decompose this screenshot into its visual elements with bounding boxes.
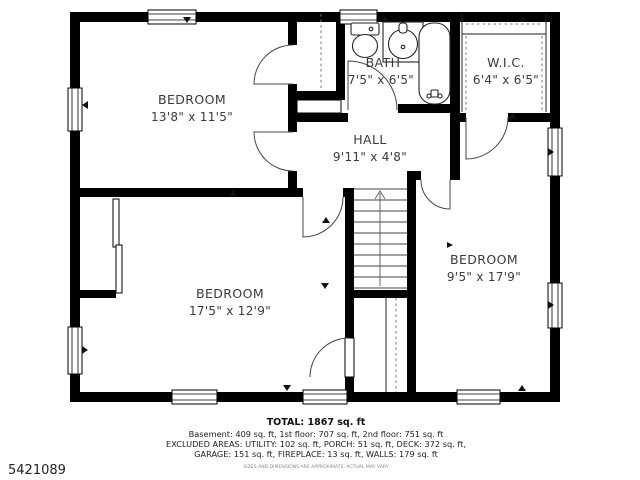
stairs-up-arrow xyxy=(375,191,385,286)
plan-id: 5421089 xyxy=(8,463,66,478)
room-dims-bath: 7'5" x 6'5" xyxy=(348,73,414,87)
floor-plan-page: BEDROOM 13'8" x 11'5" BATH 7'5" x 6'5" W… xyxy=(0,0,640,480)
summary-excluded-2: GARAGE: 151 sq. ft, FIREPLACE: 13 sq. ft… xyxy=(194,449,438,459)
wall-right xyxy=(550,12,560,402)
room-label-bath: BATH xyxy=(366,55,401,70)
sliding-closet-doors xyxy=(113,199,122,293)
room-dims-bedroom1: 13'8" x 11'5" xyxy=(151,110,233,124)
window xyxy=(457,390,500,404)
toilet-icon xyxy=(351,23,379,58)
area-summary: TOTAL: 1867 sq. ft Basement: 409 sq. ft,… xyxy=(166,417,466,470)
interior-walls xyxy=(80,12,560,402)
floor-plan-drawing: BEDROOM 13'8" x 11'5" BATH 7'5" x 6'5" W… xyxy=(0,0,640,480)
summary-total: TOTAL: 1867 sq. ft xyxy=(267,417,366,428)
outer-walls xyxy=(70,12,560,402)
room-label-hall: HALL xyxy=(353,132,386,147)
door-bedroom1-closet xyxy=(254,45,293,84)
room-dims-hall: 9'11" x 4'8" xyxy=(333,150,407,164)
stairwell-void xyxy=(386,298,396,392)
window xyxy=(340,10,377,24)
linen-closet xyxy=(297,100,341,113)
bathtub-icon xyxy=(419,23,450,104)
door-bedroom2-entry xyxy=(303,197,343,237)
room-dims-bedroom2: 17'5" x 12'9" xyxy=(189,304,271,318)
door-bedroom1-entry xyxy=(254,132,293,171)
room-label-bedroom2: BEDROOM xyxy=(196,286,264,301)
wall-top xyxy=(70,12,560,22)
window xyxy=(172,390,217,404)
room-label-bedroom3: BEDROOM xyxy=(450,252,518,267)
room-label-wic: W.I.C. xyxy=(487,55,525,70)
room-label-bedroom1: BEDROOM xyxy=(158,92,226,107)
door-understairs xyxy=(310,338,354,377)
window xyxy=(303,390,347,404)
summary-disclaimer: SIZES AND DIMENSIONS ARE APPROXIMATE, AC… xyxy=(243,464,388,470)
room-dims-bedroom3: 9'5" x 17'9" xyxy=(447,270,521,284)
window xyxy=(68,327,82,374)
room-dims-wic: 6'4" x 6'5" xyxy=(473,73,539,87)
door-bedroom3-entry xyxy=(421,180,450,209)
summary-floors: Basement: 409 sq. ft, 1st floor: 707 sq.… xyxy=(189,429,444,439)
door-wic xyxy=(466,117,508,159)
window xyxy=(68,88,82,131)
summary-excluded-1: EXCLUDED AREAS: UTILITY: 102 sq. ft, POR… xyxy=(166,439,466,449)
